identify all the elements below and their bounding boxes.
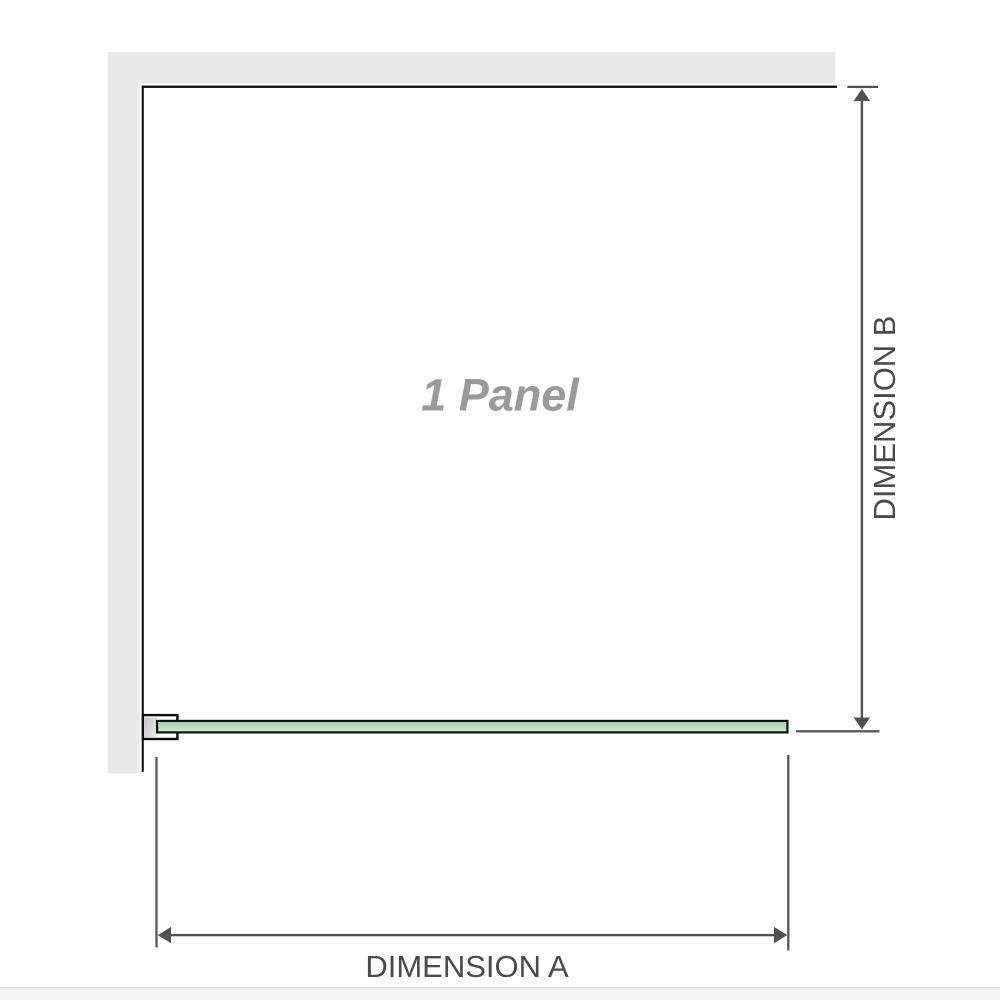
svg-text:DIMENSION B: DIMENSION B <box>867 316 902 521</box>
svg-text:1 Panel: 1 Panel <box>421 370 580 421</box>
svg-text:DIMENSION A: DIMENSION A <box>365 949 569 984</box>
